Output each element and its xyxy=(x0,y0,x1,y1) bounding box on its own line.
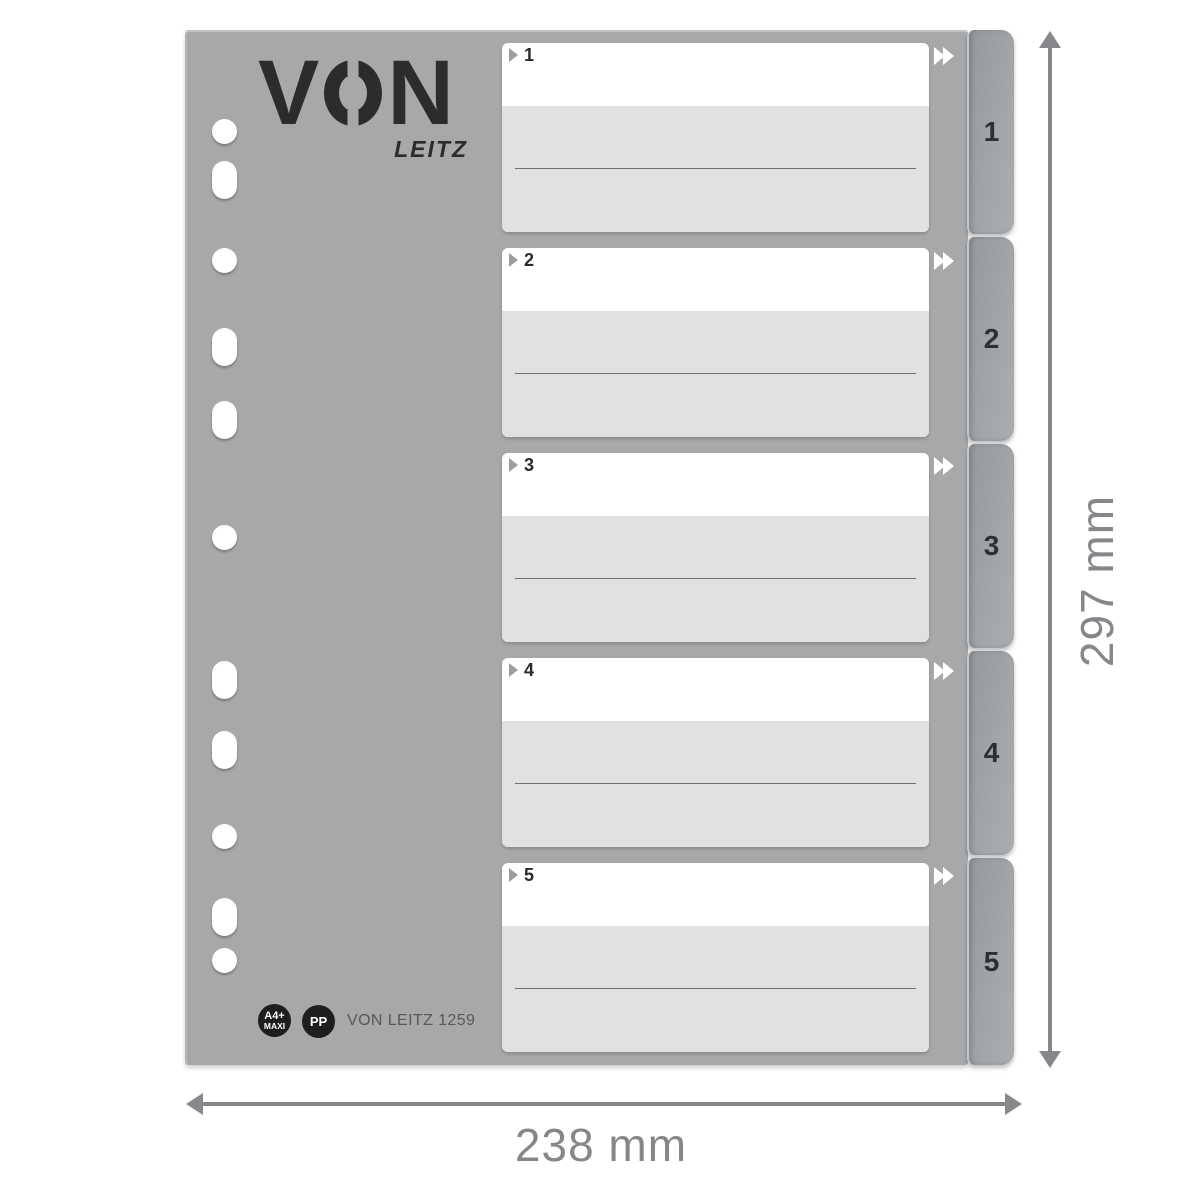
section-number: 2 xyxy=(524,250,534,271)
tab-label: 4 xyxy=(984,737,1000,769)
writing-area xyxy=(502,721,929,847)
writing-line xyxy=(515,168,916,169)
width-dimension-label: 238 mm xyxy=(401,1118,801,1172)
punch-hole xyxy=(212,401,237,439)
height-dimension-line xyxy=(1048,45,1052,1053)
arrow-right-icon xyxy=(1005,1093,1022,1115)
arrow-left-icon xyxy=(186,1093,203,1115)
triangle-marker-icon xyxy=(509,253,518,267)
tab-2: 2 xyxy=(967,237,1014,441)
logo-split-o-mark xyxy=(324,60,382,126)
logo-letter-n: N xyxy=(387,60,451,126)
writing-line xyxy=(515,373,916,374)
double-chevron-icon xyxy=(934,457,954,475)
material-badge-text: PP xyxy=(310,1014,327,1029)
double-chevron-icon xyxy=(934,867,954,885)
double-chevron-icon xyxy=(934,252,954,270)
index-section-2: 2 xyxy=(502,248,929,437)
writing-area xyxy=(502,516,929,642)
double-chevron-icon xyxy=(934,47,954,65)
writing-line xyxy=(515,578,916,579)
triangle-marker-icon xyxy=(509,458,518,472)
punch-hole xyxy=(212,731,237,769)
triangle-marker-icon xyxy=(509,868,518,882)
logo-letter-v: V xyxy=(258,60,317,126)
section-number: 1 xyxy=(524,45,534,66)
product-image: V N LEITZ 1 2 3 4 5 xyxy=(0,0,1200,1200)
size-badge-line1: A4+ xyxy=(264,1011,285,1022)
size-badge-line2: MAXI xyxy=(264,1022,285,1031)
width-dimension-line xyxy=(202,1102,1008,1106)
punch-hole xyxy=(212,119,237,144)
writing-area xyxy=(502,106,929,232)
writing-area xyxy=(502,311,929,437)
tab-1: 1 xyxy=(967,30,1014,234)
writing-line xyxy=(515,783,916,784)
punch-hole xyxy=(212,525,237,550)
writing-line xyxy=(515,988,916,989)
punch-hole xyxy=(212,248,237,273)
tab-label: 1 xyxy=(984,116,1000,148)
tab-4: 4 xyxy=(967,651,1014,855)
brand-logo: V N LEITZ xyxy=(258,58,470,163)
tab-label: 2 xyxy=(984,323,1000,355)
section-number: 5 xyxy=(524,865,534,886)
index-section-4: 4 xyxy=(502,658,929,847)
punch-hole xyxy=(212,948,237,973)
section-number: 3 xyxy=(524,455,534,476)
punch-hole xyxy=(212,328,237,366)
punch-hole xyxy=(212,161,237,199)
index-section-5: 5 xyxy=(502,863,929,1052)
size-badge: A4+ MAXI xyxy=(258,1004,291,1037)
punch-hole xyxy=(212,661,237,699)
logo-von-wordmark: V N xyxy=(258,58,470,128)
tab-label: 3 xyxy=(984,530,1000,562)
triangle-marker-icon xyxy=(509,48,518,62)
punch-hole xyxy=(212,898,237,936)
tab-3: 3 xyxy=(967,444,1014,648)
section-number: 4 xyxy=(524,660,534,681)
punch-hole xyxy=(212,824,237,849)
tab-label: 5 xyxy=(984,946,1000,978)
tab-5: 5 xyxy=(967,858,1014,1065)
double-chevron-icon xyxy=(934,662,954,680)
height-dimension-label: 297 mm xyxy=(1072,431,1122,731)
material-badge: PP xyxy=(302,1005,335,1038)
product-code: VON LEITZ 1259 xyxy=(347,1012,475,1030)
index-section-1: 1 xyxy=(502,43,929,232)
writing-area xyxy=(502,926,929,1052)
arrow-down-icon xyxy=(1039,1051,1061,1068)
arrow-up-icon xyxy=(1039,31,1061,48)
triangle-marker-icon xyxy=(509,663,518,677)
index-section-3: 3 xyxy=(502,453,929,642)
